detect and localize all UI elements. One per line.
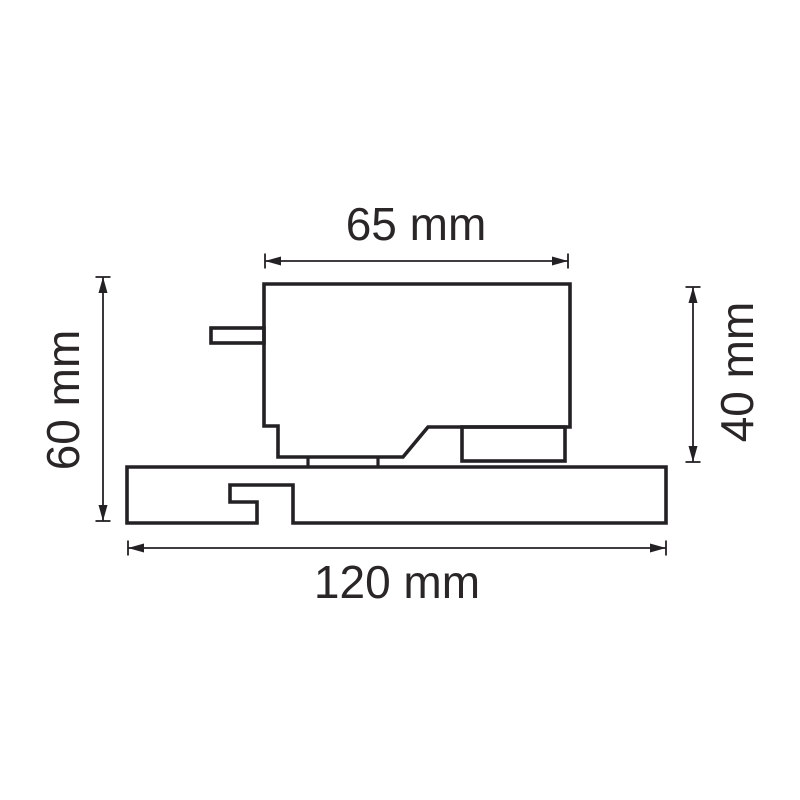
drawing-linework <box>96 254 701 556</box>
dimension-label-bottom-width: 120 mm <box>314 556 480 608</box>
dim-line-top-width-arrow-start <box>265 257 281 266</box>
dim-line-left-height-arrow-start <box>99 277 108 293</box>
dimension-label-top-width: 65 mm <box>346 198 487 250</box>
bottom-right-block-outline <box>462 427 565 461</box>
technical-drawing-page: 65 mm 120 mm 60 mm 40 mm <box>0 0 800 800</box>
dim-line-right-height-arrow-start <box>689 287 698 303</box>
track-profile-outline <box>127 467 666 523</box>
dim-line-left-height-arrow-end <box>99 505 108 521</box>
dimension-label-left-height: 60 mm <box>37 330 89 471</box>
dim-line-bottom-width-arrow-start <box>128 544 144 553</box>
dim-line-bottom-width-arrow-end <box>650 544 666 553</box>
adapter-body-outline <box>264 284 570 457</box>
dim-line-top-width-arrow-end <box>552 257 568 266</box>
dimension-drawing: 65 mm 120 mm 60 mm 40 mm <box>0 0 800 800</box>
dim-line-right-height-arrow-end <box>689 446 698 462</box>
dimension-label-right-height: 40 mm <box>711 302 763 443</box>
side-tab-outline <box>211 328 264 343</box>
